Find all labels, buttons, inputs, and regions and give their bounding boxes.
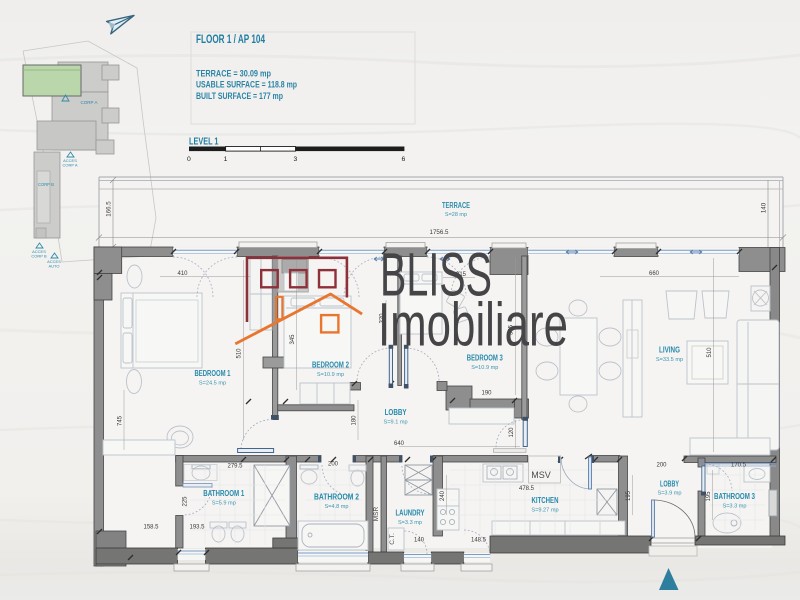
svg-text:S=24.5 mp: S=24.5 mp [199, 381, 226, 387]
svg-text:745: 745 [118, 415, 124, 426]
svg-text:225: 225 [183, 496, 189, 507]
svg-text:BEDROOM 1: BEDROOM 1 [195, 369, 231, 378]
svg-text:BATHROOM 3: BATHROOM 3 [714, 492, 756, 501]
svg-text:140: 140 [761, 202, 768, 213]
svg-text:180: 180 [352, 415, 358, 426]
svg-text:CORP B: CORP B [31, 254, 47, 259]
svg-text:200: 200 [656, 463, 667, 469]
svg-text:MSV: MSV [531, 470, 551, 480]
svg-text:FLOOR 1 / AP 104: FLOOR 1 / AP 104 [196, 34, 265, 46]
svg-text:279.5: 279.5 [227, 464, 243, 470]
svg-text:6: 6 [402, 156, 406, 163]
svg-text:BEDROOM 2: BEDROOM 2 [312, 361, 350, 370]
svg-text:S=3.3 mp: S=3.3 mp [398, 520, 422, 526]
svg-text:S=10.9 mp: S=10.9 mp [317, 372, 344, 378]
svg-text:LEVEL 1: LEVEL 1 [189, 136, 219, 148]
svg-text:140: 140 [414, 538, 425, 544]
svg-text:CORP A: CORP A [81, 100, 98, 105]
svg-text:0: 0 [187, 156, 191, 163]
svg-text:410: 410 [177, 271, 188, 277]
svg-text:200: 200 [328, 462, 339, 468]
svg-text:510: 510 [707, 347, 713, 358]
svg-text:1756.5: 1756.5 [430, 229, 449, 236]
svg-text:195: 195 [706, 491, 712, 502]
svg-text:240: 240 [440, 490, 446, 501]
svg-text:S=9.27 mp: S=9.27 mp [531, 508, 558, 514]
svg-text:S=5.9 mp: S=5.9 mp [212, 501, 236, 507]
svg-text:MSR: MSR [373, 506, 380, 521]
svg-text:640: 640 [394, 441, 405, 447]
svg-text:BATHROOM 2: BATHROOM 2 [314, 493, 360, 502]
svg-text:LAUNDRY: LAUNDRY [396, 509, 426, 518]
svg-text:BUILT SURFACE = 177 mp: BUILT SURFACE = 177 mp [196, 91, 283, 102]
svg-text:193.5: 193.5 [189, 525, 205, 531]
svg-text:AUTO: AUTO [48, 264, 59, 269]
svg-text:KITCHEN: KITCHEN [532, 496, 559, 505]
svg-text:USABLE SURFACE = 118.8 mp: USABLE SURFACE = 118.8 mp [196, 80, 297, 91]
svg-text:CORP A: CORP A [62, 163, 77, 168]
svg-text:3: 3 [294, 156, 298, 163]
svg-text:LOBBY: LOBBY [385, 408, 408, 417]
svg-text:478.5: 478.5 [519, 486, 535, 492]
svg-text:S=3.9 mp: S=3.9 mp [657, 491, 681, 497]
svg-text:Imobiliare: Imobiliare [378, 291, 568, 359]
svg-text:195: 195 [626, 490, 632, 501]
svg-text:120: 120 [509, 427, 515, 438]
svg-text:S=10.9 mp: S=10.9 mp [471, 365, 498, 371]
svg-text:166.5: 166.5 [106, 201, 113, 217]
svg-text:BATHROOM 1: BATHROOM 1 [203, 489, 245, 498]
svg-text:C.T.: C.T. [389, 533, 396, 545]
svg-text:170.5: 170.5 [731, 463, 747, 469]
svg-text:660: 660 [649, 271, 660, 277]
svg-text:190: 190 [481, 391, 492, 397]
svg-text:CORP B: CORP B [38, 182, 54, 187]
svg-text:LOBBY: LOBBY [660, 480, 680, 489]
svg-text:510: 510 [237, 348, 243, 359]
svg-text:S=33.5 mp: S=33.5 mp [656, 357, 683, 363]
svg-text:S=3.3 mp: S=3.3 mp [722, 504, 746, 510]
svg-text:LIVING: LIVING [659, 346, 680, 355]
svg-text:TERRACE = 30.09 mp: TERRACE = 30.09 mp [196, 69, 271, 80]
svg-text:345: 345 [290, 334, 296, 345]
svg-text:158.5: 158.5 [143, 525, 159, 531]
svg-text:S=28 mp: S=28 mp [445, 212, 467, 218]
svg-text:S=9.1 mp: S=9.1 mp [384, 420, 408, 426]
svg-text:1: 1 [224, 156, 228, 163]
svg-text:148.5: 148.5 [471, 538, 487, 544]
svg-text:S=4.8 mp: S=4.8 mp [324, 504, 348, 510]
svg-text:TERRACE: TERRACE [442, 201, 470, 210]
